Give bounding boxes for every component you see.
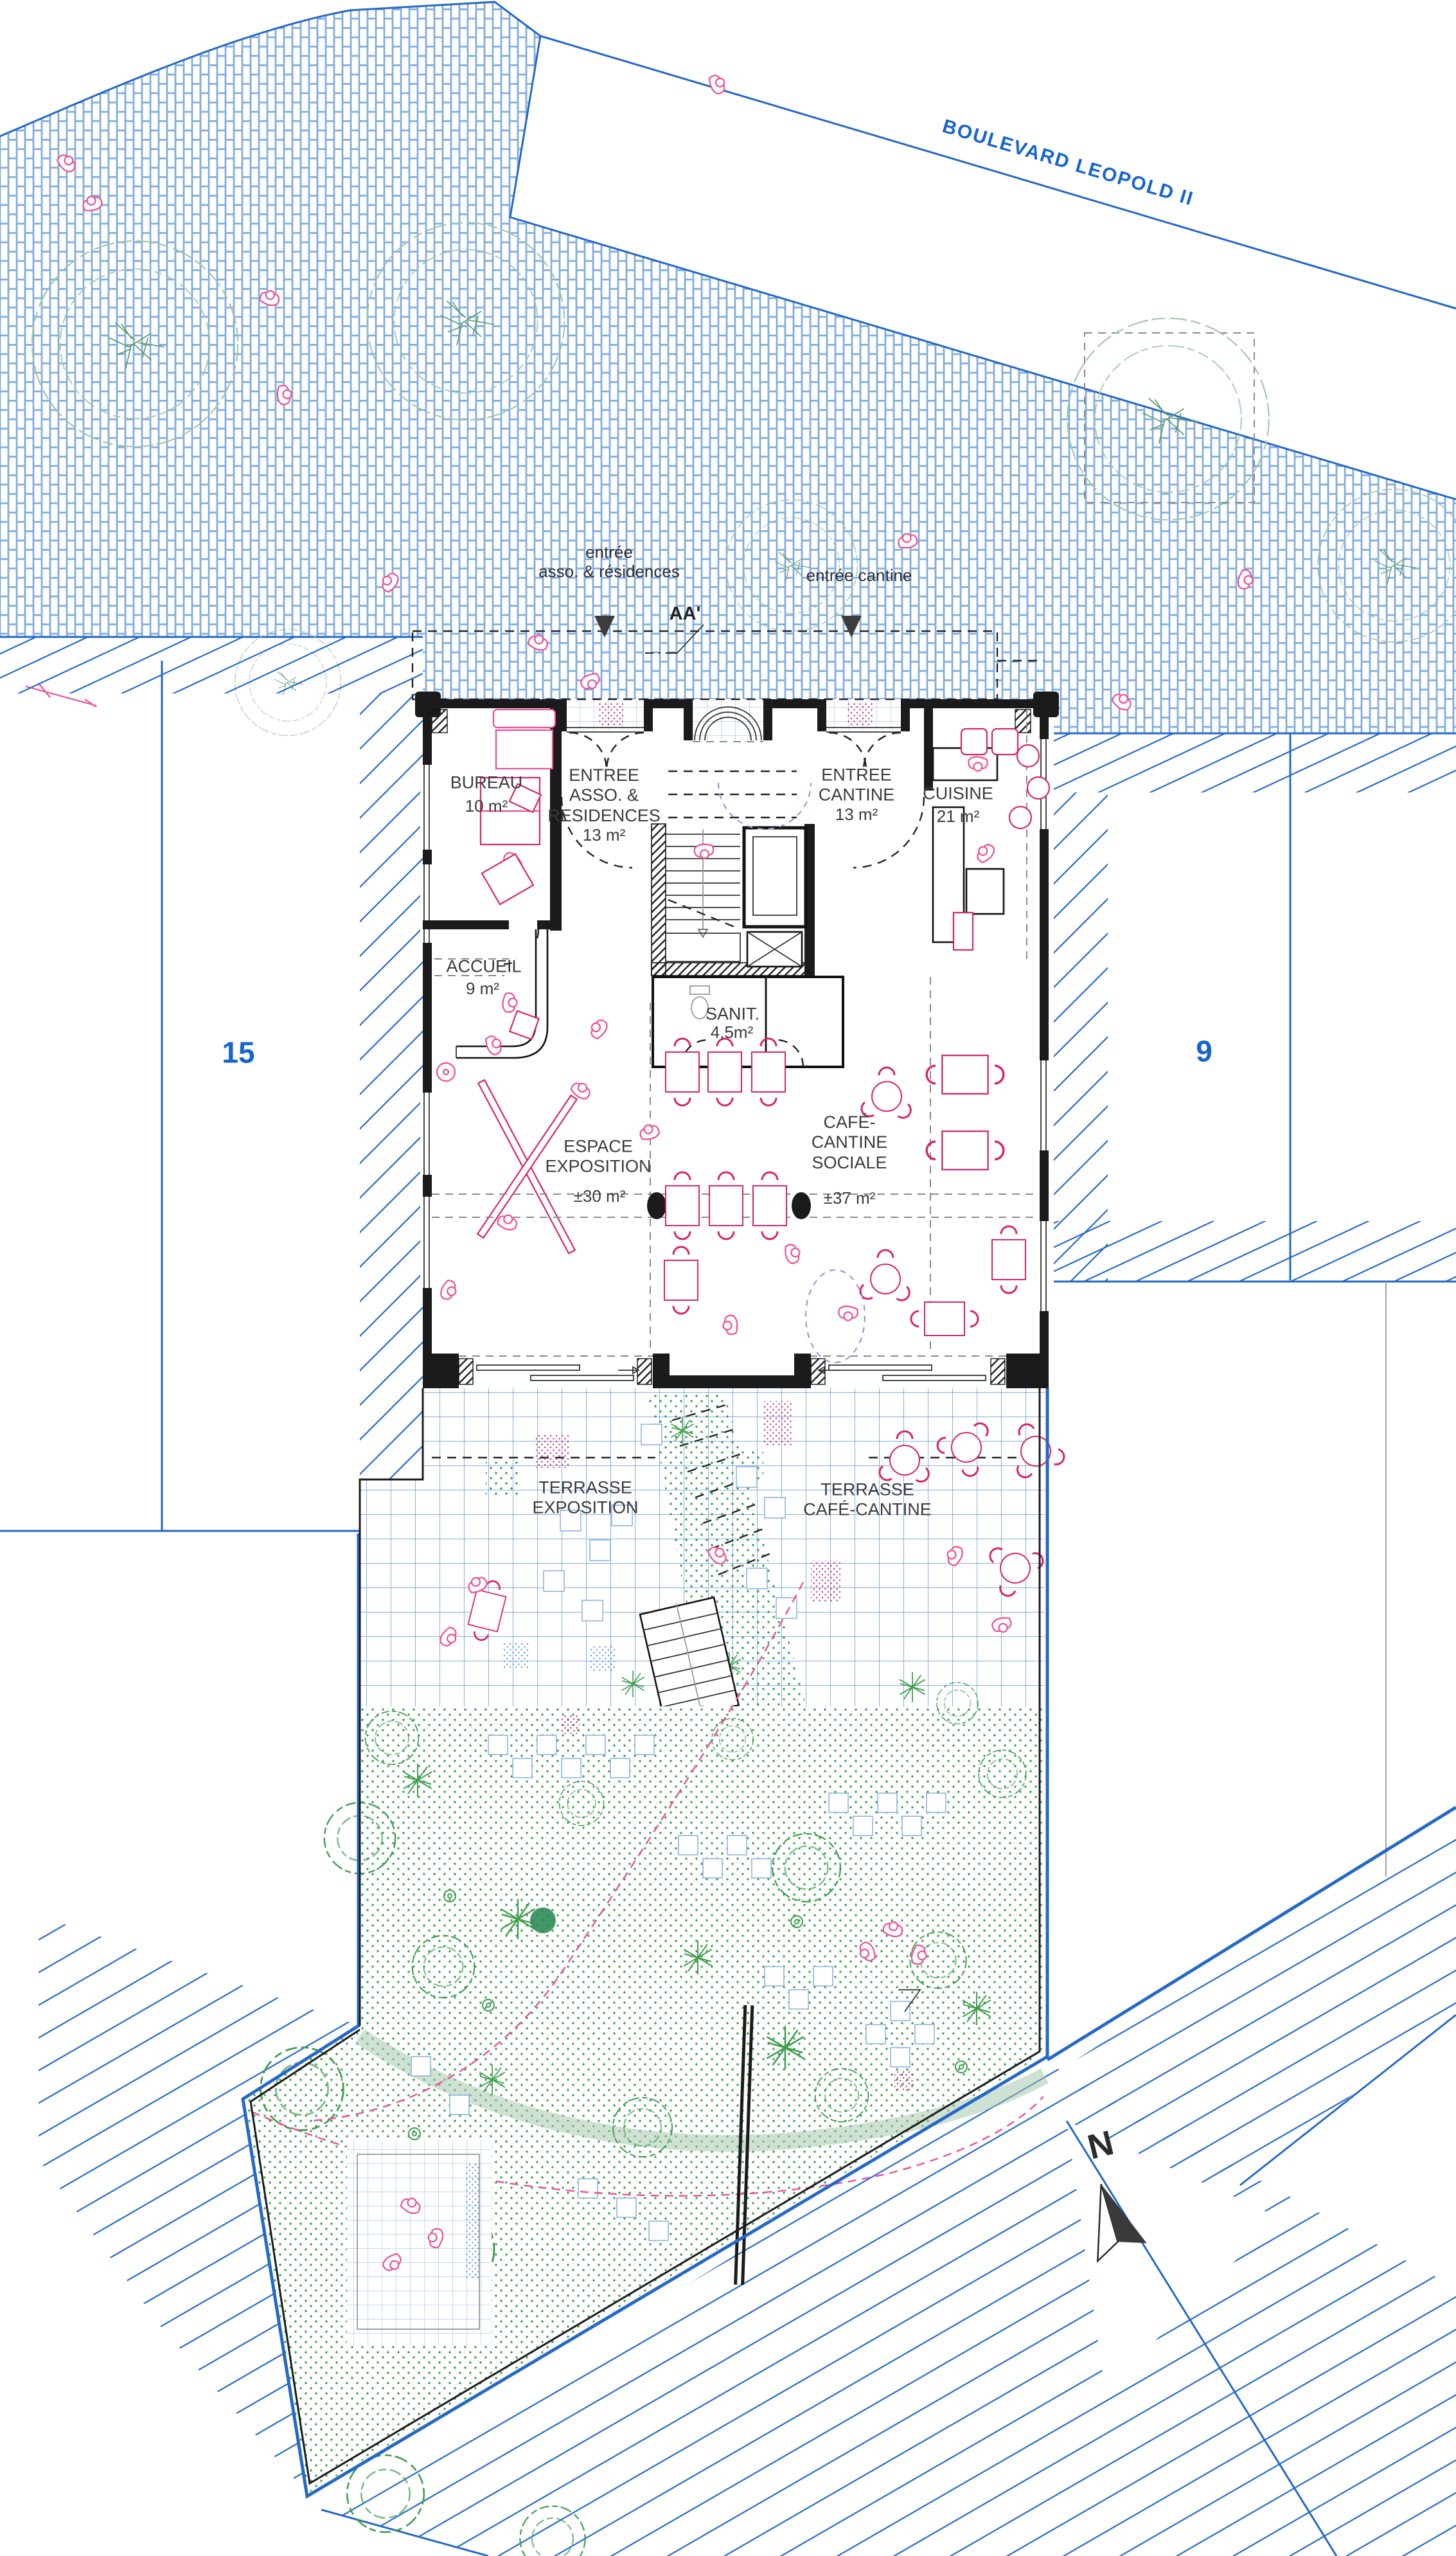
garden-patio	[347, 2140, 492, 2346]
room-area-entree-asso: 13 m²	[583, 825, 625, 845]
room-label-cafe-cantine: CAFÉ- CANTINE SOCIALE	[812, 1113, 888, 1173]
room-label-entree-cantine: ENTREE CANTINE	[819, 765, 895, 806]
room-label-entree-asso: ENTREE ASSO. & RESIDENCES	[547, 765, 661, 826]
terrace-label-exposition: TERRASSE EXPOSITION	[532, 1478, 638, 1519]
column	[792, 1192, 811, 1219]
room-area-cafe-cantine: ±37 m²	[824, 1188, 876, 1208]
room-label-sanit: SANIT.	[706, 1004, 759, 1024]
parcel-right-9	[1054, 733, 1456, 1877]
parcel-left-15	[0, 637, 423, 1531]
room-area-bureau: 10 m²	[465, 796, 508, 816]
section-mark-label: AA'	[670, 603, 701, 625]
parcel-number-9: 9	[1196, 1034, 1212, 1068]
parcel-number-15: 15	[222, 1035, 254, 1069]
room-area-espace-exposition: ±30 m²	[574, 1186, 626, 1206]
entrance-asso-annotation: entrée asso. & résidences	[538, 542, 680, 581]
terrace	[360, 1388, 1070, 1722]
site-plan-drawing	[0, 0, 1456, 2556]
sidewalk-paving	[0, 2, 1456, 733]
room-label-accueil: ACCUEIL	[446, 956, 521, 976]
entrance-cantine-annotation: entrée cantine	[806, 566, 912, 585]
room-area-sanit: 4,5m²	[711, 1023, 753, 1042]
tree-trunk	[530, 1908, 556, 1933]
column	[647, 1192, 666, 1219]
room-area-entree-cantine: 13 m²	[835, 805, 878, 824]
room-label-espace-exposition: ESPACE EXPOSITION	[545, 1137, 651, 1177]
room-label-cuisine: CUISINE	[923, 783, 993, 803]
room-label-bureau: BUREAU	[450, 773, 523, 792]
room-area-cuisine: 21 m²	[937, 807, 979, 826]
terrace-label-cafe-cantine: TERRASSE CAFÉ-CANTINE	[803, 1480, 932, 1521]
room-area-accueil: 9 m²	[466, 979, 499, 998]
site-plan-canvas: BOULEVARD LEOPOLD II entrée asso. & rési…	[0, 0, 1456, 2556]
building	[413, 616, 1059, 1388]
